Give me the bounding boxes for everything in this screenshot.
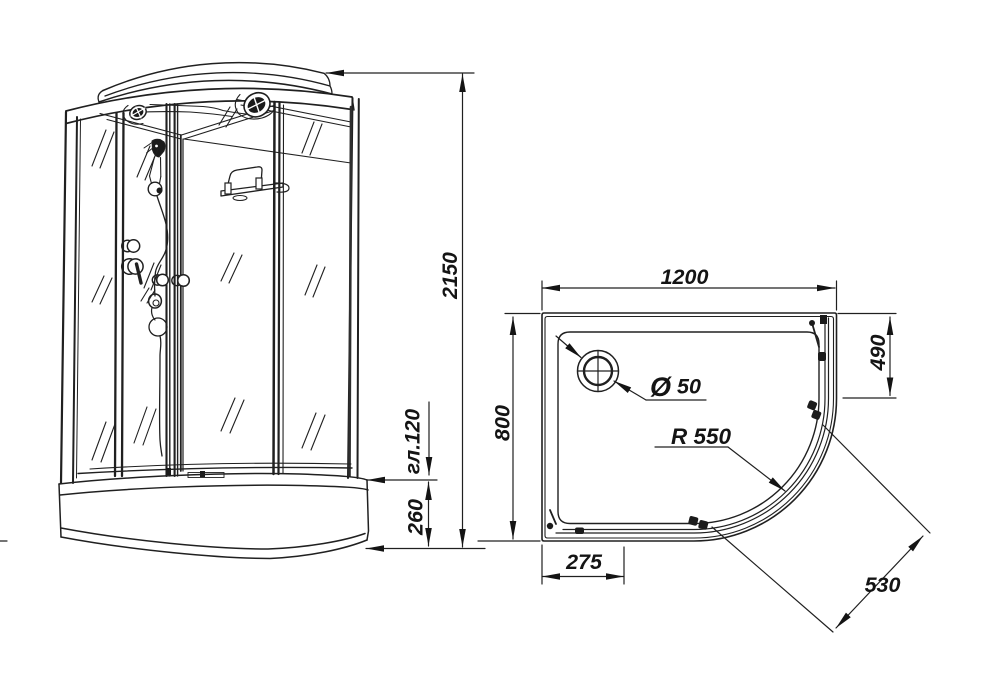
svg-text:1200: 1200 [661,265,709,289]
svg-text:530: 530 [865,573,901,597]
svg-text:гл.120: гл.120 [402,409,425,474]
svg-text:800: 800 [491,405,515,441]
svg-text:2150: 2150 [439,252,462,300]
svg-text:490: 490 [866,335,890,372]
svg-text:R 550: R 550 [671,424,732,449]
svg-text:275: 275 [565,550,603,574]
svg-text:Ø 50: Ø 50 [650,372,701,402]
svg-text:260: 260 [404,499,428,536]
